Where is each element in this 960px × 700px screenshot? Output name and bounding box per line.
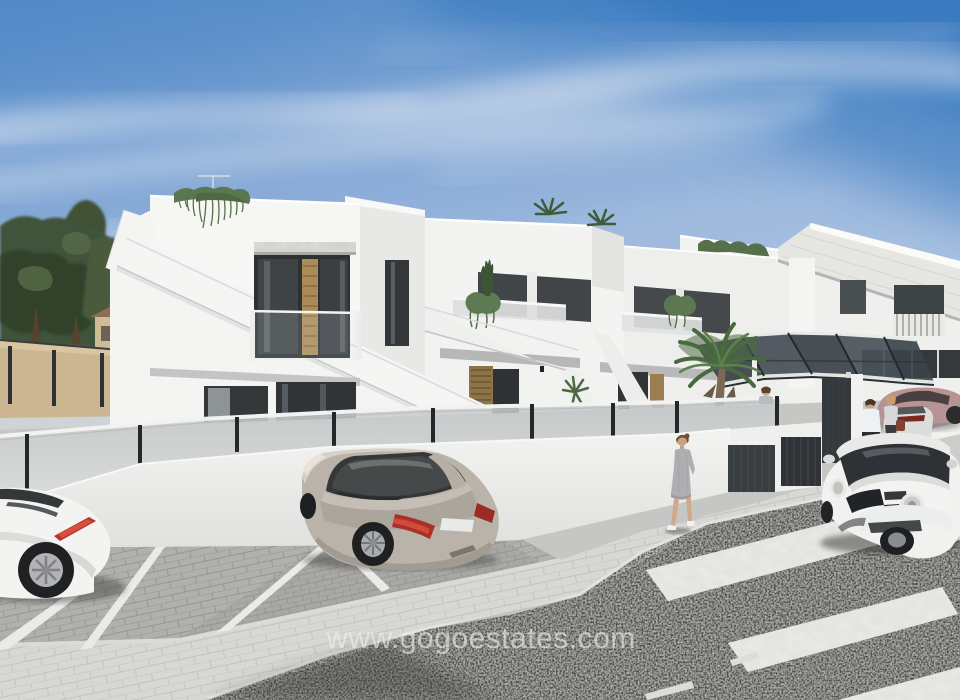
svg-text:www.gogoestates.com: www.gogoestates.com [325, 622, 636, 655]
